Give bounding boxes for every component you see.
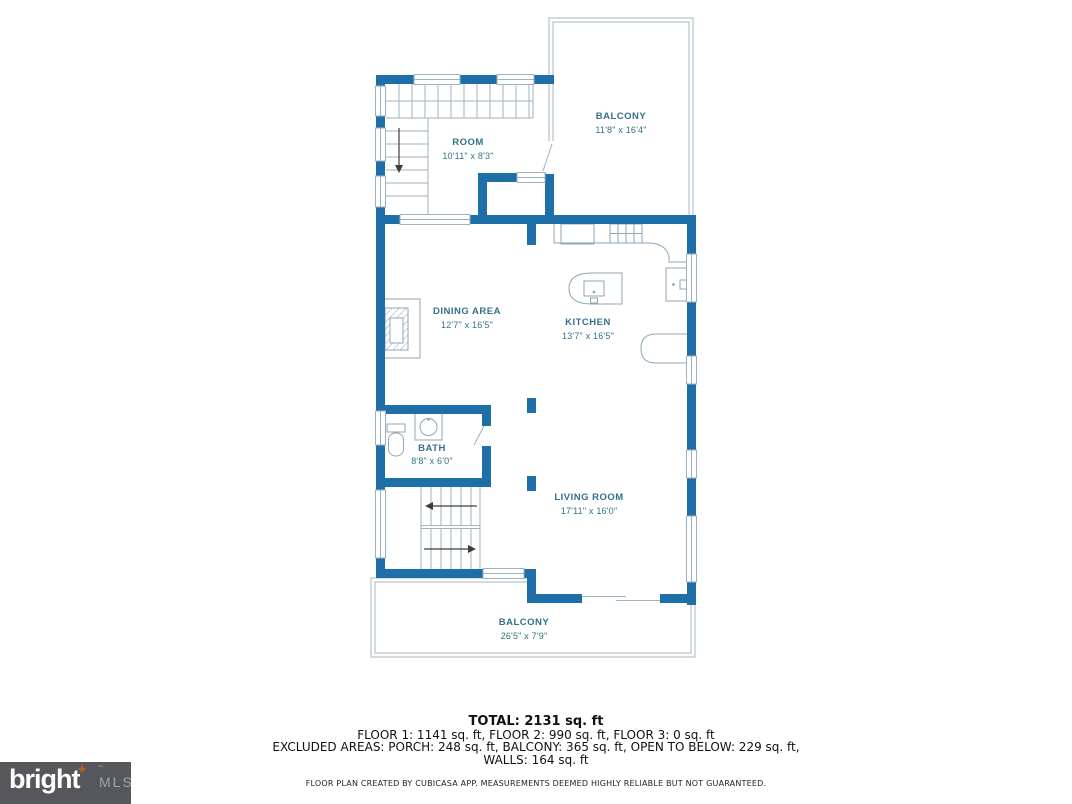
room-label-bath: BATH xyxy=(418,443,446,454)
stove xyxy=(610,224,642,243)
bath-door xyxy=(474,426,491,446)
area-summary: TOTAL: 2131 sq. ft FLOOR 1: 1141 sq. ft,… xyxy=(0,715,1072,766)
room-dims-living-room: 17'11" x 16'0" xyxy=(561,506,618,516)
room-dims-dining-area: 12'7" x 16'5" xyxy=(441,320,493,330)
kitchen-island xyxy=(569,273,622,304)
logo-suffix-text: MLS xyxy=(99,774,134,790)
toilet xyxy=(387,424,405,456)
kitchen-side-fixture xyxy=(666,268,687,301)
floorplan-drawing: BALCONY 11'8" x 16'4" ROOM 10'11" x 8'3"… xyxy=(0,0,1072,710)
summary-total: TOTAL: 2131 sq. ft xyxy=(0,715,1072,728)
room-label-balcony-bottom: BALCONY xyxy=(499,617,550,628)
sliding-door xyxy=(582,594,660,603)
staircase-lower xyxy=(421,487,480,569)
room-label-room: ROOM xyxy=(452,137,484,148)
room-dims-balcony-bottom: 26'5" x 7'9" xyxy=(501,631,548,641)
fireplace xyxy=(384,299,420,358)
stair-down-arrow xyxy=(395,165,403,173)
room-dims-bath: 8'8" x 6'0" xyxy=(411,456,453,466)
logo-brand-text: bright xyxy=(9,764,79,795)
island-sink xyxy=(584,281,604,296)
room-label-dining-area: DINING AREA xyxy=(433,306,501,317)
room-label-balcony-top: BALCONY xyxy=(596,111,647,122)
room-label-living-room: LIVING ROOM xyxy=(554,492,623,503)
disclaimer-text: FLOOR PLAN CREATED BY CUBICASA APP. MEAS… xyxy=(0,779,1072,788)
balcony-door xyxy=(543,141,556,174)
room-label-kitchen: KITCHEN xyxy=(565,317,611,328)
brightmls-logo: bright ✦ ™ MLS xyxy=(0,762,131,804)
counter-peninsula xyxy=(641,334,687,363)
dishwasher xyxy=(561,224,594,244)
room-dims-kitchen: 13'7" x 16'5" xyxy=(562,331,614,341)
stair-right-arrow xyxy=(468,545,476,553)
room-dims-balcony-top: 11'8" x 16'4" xyxy=(595,125,646,135)
staircase-upper xyxy=(386,84,533,215)
bath-sink xyxy=(415,412,442,440)
summary-excluded: EXCLUDED AREAS: PORCH: 248 sq. ft, BALCO… xyxy=(0,741,1072,753)
room-dims-room: 10'11" x 8'3" xyxy=(442,151,493,161)
summary-walls: WALLS: 164 sq. ft xyxy=(0,754,1072,766)
floor-plan-page: BALCONY 11'8" x 16'4" ROOM 10'11" x 8'3"… xyxy=(0,0,1072,804)
logo-tm-mark: ™ xyxy=(97,765,103,771)
logo-star-icon: ✦ xyxy=(76,761,88,778)
stair-left-arrow xyxy=(425,502,433,510)
